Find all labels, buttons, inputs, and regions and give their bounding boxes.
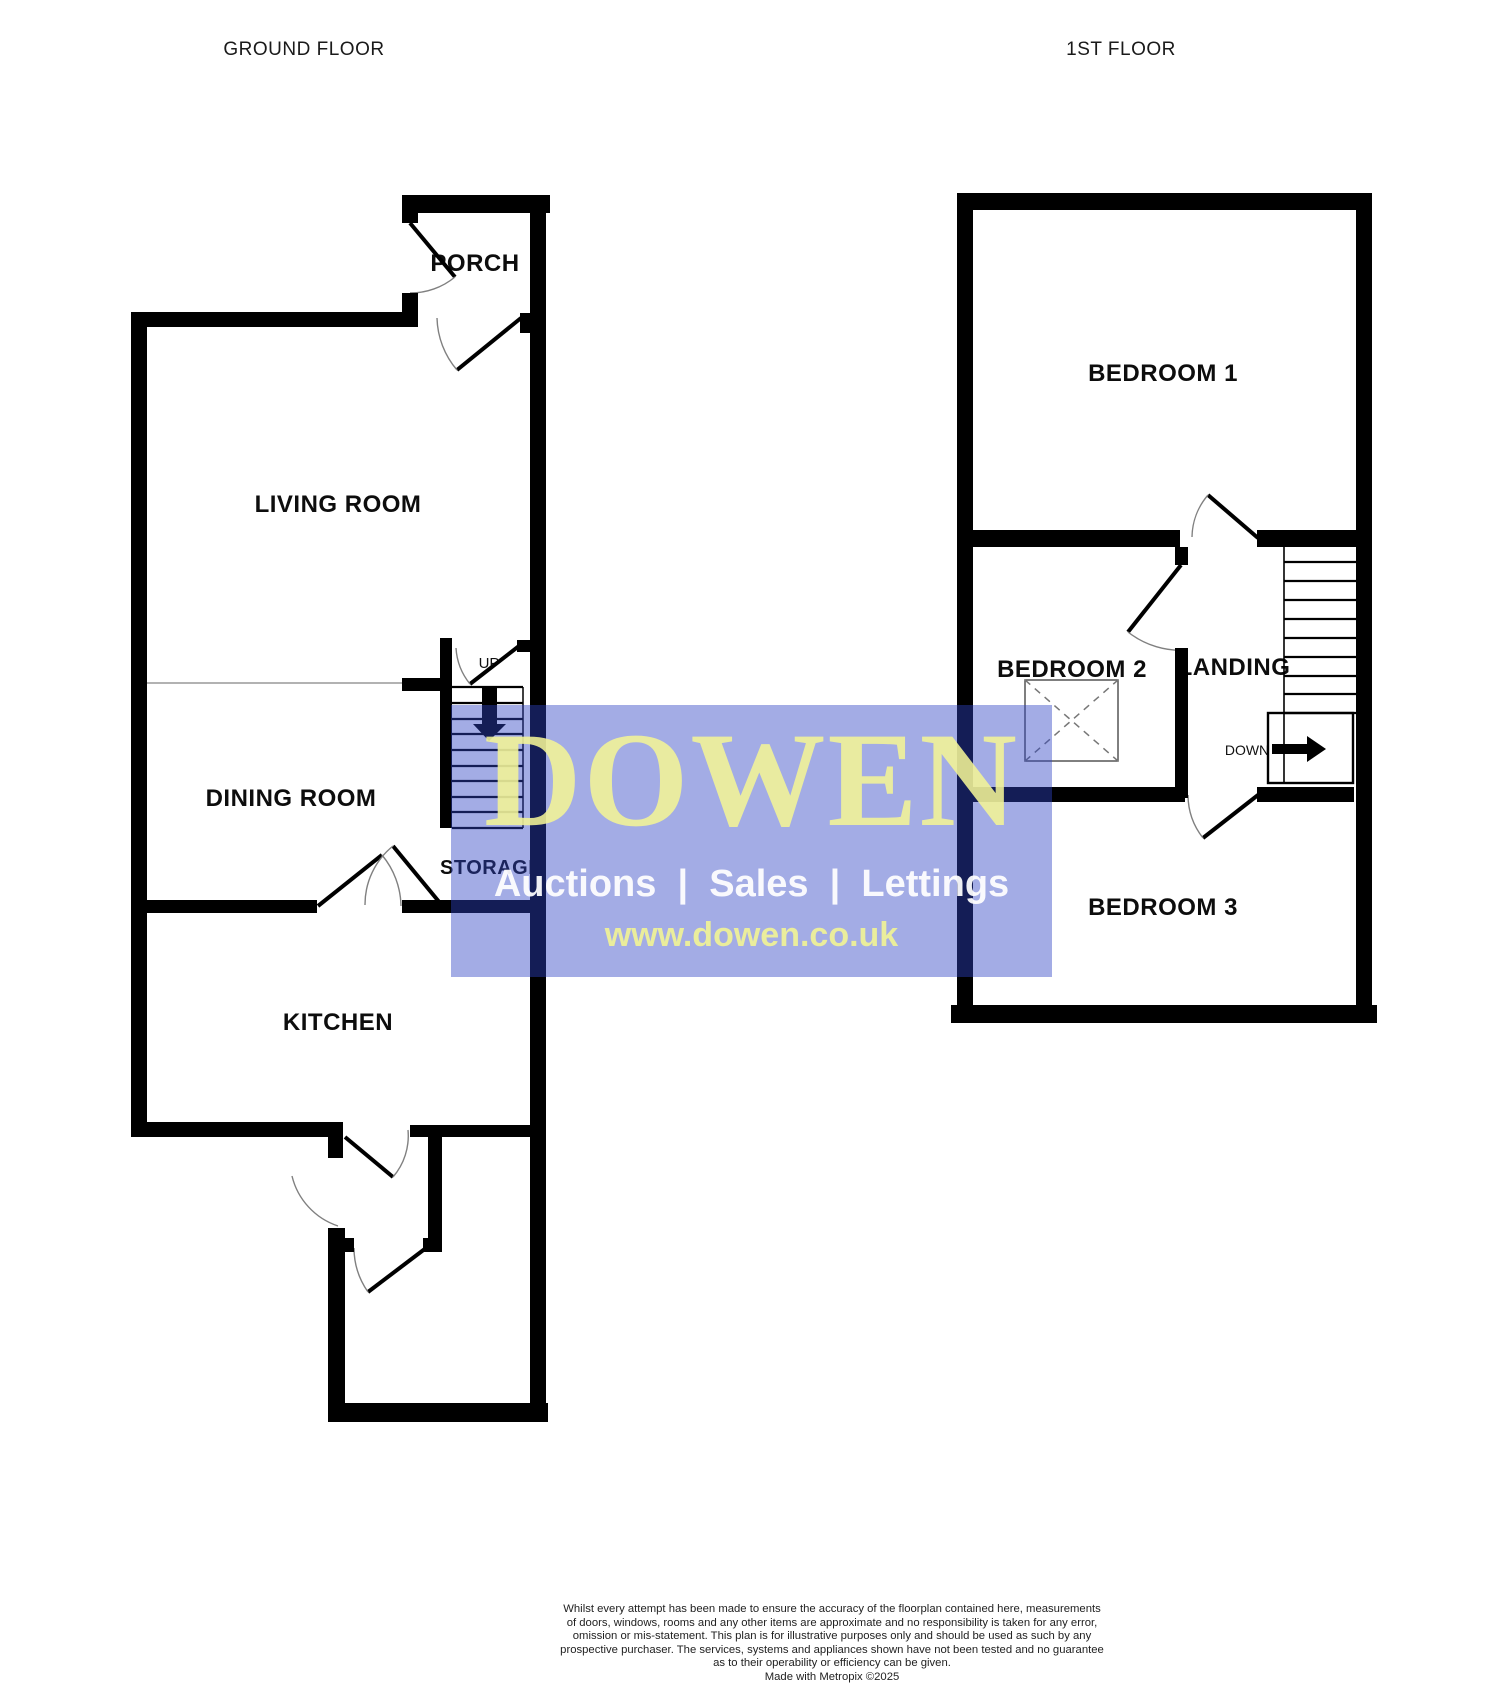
door-arc-kitchen-rear <box>393 1130 408 1177</box>
door-leaf-bedroom1 <box>1208 495 1258 538</box>
door-leaf-dining-kitchen <box>318 855 382 906</box>
wall-lobby-bottom-stub <box>423 1238 442 1252</box>
wall-living-top <box>131 312 402 327</box>
wall-bedroom1-bottom-right <box>1257 530 1372 547</box>
arrow-shaft <box>1272 744 1307 754</box>
door-leaf-stairs <box>470 646 519 684</box>
door-arc-stairs <box>456 648 470 684</box>
door-arc-rear-outside <box>292 1176 338 1226</box>
door-arc-bedroom1 <box>1192 495 1208 537</box>
down-arrow-icon <box>1272 736 1326 762</box>
wall-porch-right-stub <box>520 313 532 333</box>
wall-dining-bottom-left <box>139 900 317 913</box>
door-leaf-bedroom2 <box>1128 565 1181 632</box>
door-arc-porch-living <box>437 318 457 370</box>
wall-extension-left-nub <box>345 1238 354 1252</box>
watermark-services-line: Auctions | Sales | Lettings <box>451 863 1052 906</box>
door-arc-bedroom3 <box>1188 795 1203 838</box>
wall-first-right <box>1356 193 1372 1022</box>
door-leaf-entrance <box>410 223 455 277</box>
door-arc-entrance <box>410 277 455 293</box>
wall-landing-stub-top <box>1175 547 1188 565</box>
wall-first-top <box>957 193 1371 210</box>
wall-lobby-vertical <box>428 1137 442 1240</box>
wall-kitchen-bottom-left <box>131 1122 343 1137</box>
wall-first-bottom <box>951 1005 1377 1023</box>
wall-ground-left <box>131 312 147 1137</box>
door-leaf-porch-living <box>457 318 521 370</box>
watermark-website-link: www.dowen.co.uk <box>451 916 1052 955</box>
door-leaf-kitchen-rear <box>345 1137 393 1177</box>
wall-bedroom2-landing <box>1175 648 1188 798</box>
wall-porch-bottom-stub <box>402 293 418 327</box>
watermark-brand-logo: DOWEN <box>451 713 1052 848</box>
wall-extension-left <box>328 1228 345 1422</box>
wall-porch-top-stub <box>402 195 418 223</box>
wall-kitchen-stub-down <box>328 1122 343 1158</box>
door-leaf-lobby <box>368 1245 430 1292</box>
wall-stairs-top-stub <box>517 640 530 652</box>
wall-extension-bottom <box>328 1403 548 1422</box>
agency-watermark: DOWEN Auctions | Sales | Lettings www.do… <box>451 705 1052 977</box>
arrow-head <box>1307 736 1326 762</box>
wall-kitchen-bottom-right <box>410 1125 530 1137</box>
door-arc-lobby <box>354 1248 368 1292</box>
door-arc-dining-kitchen <box>382 855 401 906</box>
door-leaf-bedroom3 <box>1203 795 1258 838</box>
wall-divider-stub <box>402 678 440 691</box>
wall-landing-bottom <box>1257 787 1354 802</box>
floorplan-page: GROUND FLOOR 1ST FLOOR <box>0 0 1500 1683</box>
wall-bedroom1-bottom-left <box>957 530 1180 547</box>
